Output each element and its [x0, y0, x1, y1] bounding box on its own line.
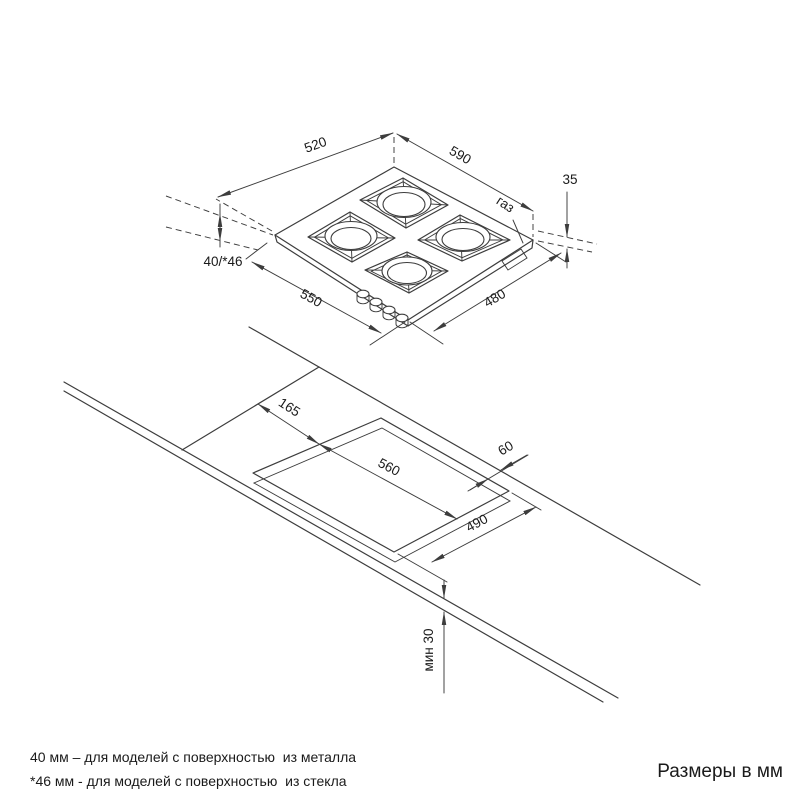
worktop [64, 327, 700, 702]
hob-isometric-view: газ 520 590 550 480 [166, 133, 597, 345]
footer: 40 мм – для моделей с поверхностью из ме… [30, 749, 783, 789]
dim-60-label: 60 [495, 438, 516, 459]
cutout-opening [253, 418, 510, 562]
dim-590-label: 590 [447, 143, 474, 167]
dimension-35: 35 [538, 172, 597, 268]
units-label: Размеры в мм [657, 761, 783, 782]
dim-520-label: 520 [302, 134, 328, 156]
note-metal: 40 мм – для моделей с поверхностью из ме… [30, 749, 356, 765]
dim-min-30-label: мин 30 [421, 628, 436, 671]
dimension-40-46: 40/*46 [166, 196, 273, 269]
dimension-550: 550 [246, 243, 405, 345]
worktop-cutout-view: 165 560 60 490 мин 30 [64, 327, 700, 702]
dimension-480: 480 [410, 243, 566, 344]
burner-rear [360, 178, 448, 228]
dim-490-label: 490 [463, 511, 490, 535]
dim-40-46-label: 40/*46 [203, 254, 242, 269]
dimension-60: 60 [468, 438, 528, 491]
installation-diagram: газ 520 590 550 480 [0, 0, 800, 800]
dim-35-label: 35 [562, 172, 577, 187]
control-knob [357, 290, 369, 304]
gas-label: газ [494, 193, 517, 215]
burner-left [308, 212, 395, 262]
burner-right [418, 215, 510, 261]
control-knob [370, 298, 382, 312]
dimension-490: 490 [398, 493, 541, 582]
control-knob [383, 306, 395, 320]
dim-165-label: 165 [276, 395, 303, 420]
burner-front [365, 252, 448, 293]
technical-drawing-page: газ 520 590 550 480 [0, 0, 800, 800]
control-knob [396, 314, 408, 328]
dim-560-label: 560 [376, 455, 403, 479]
dimension-165: 165 [258, 395, 319, 444]
note-glass: *46 мм - для моделей с поверхностью из с… [30, 773, 347, 789]
dim-480-label: 480 [481, 286, 508, 310]
dimension-560: 560 [319, 444, 457, 519]
